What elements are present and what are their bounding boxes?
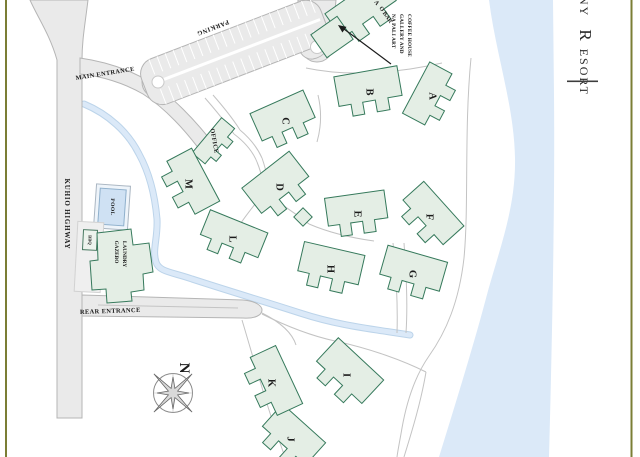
building-label-f: F: [424, 214, 435, 220]
building-label-e: E: [352, 210, 363, 217]
building-label-a: A: [427, 92, 438, 100]
bbq-label: BBQ: [88, 235, 93, 245]
building-label-j: J: [285, 436, 296, 441]
gallery-label-line1: NA PALI ART: [390, 14, 396, 49]
building-label-i: I: [341, 373, 352, 377]
compass-north-label: N: [176, 363, 192, 374]
building-label-h: H: [325, 265, 336, 273]
building-label-c: C: [280, 117, 291, 125]
compass-star: [154, 374, 192, 412]
building-label-d: D: [274, 183, 285, 191]
kuhio-highway-label: KUHIO HIGHWAY: [63, 178, 71, 249]
frame-left: [5, 0, 7, 457]
frame-right: [631, 0, 633, 457]
gallery-label-line2: GALLERY AND: [398, 14, 404, 54]
resort-map: POOL BBQ GAZEBO LAUNDRY OFFICE A O BAR N…: [0, 0, 640, 457]
title-rule: [567, 81, 598, 83]
building-label-g: G: [407, 270, 418, 278]
turnaround-island-west: [152, 76, 164, 88]
gazebo-label: GAZEBO: [113, 241, 119, 264]
gallery-label-line3: COFFEE HOUSE: [406, 14, 412, 57]
resort-map-page: POOL BBQ GAZEBO LAUNDRY OFFICE A O BAR N…: [0, 0, 640, 457]
pool-label: POOL: [109, 198, 115, 215]
building-label-k: K: [266, 379, 277, 388]
laundry-label: LAUNDRY: [121, 241, 127, 267]
building-label-l: L: [227, 235, 238, 242]
building-label-b: B: [364, 88, 375, 95]
building-label-m: M: [183, 179, 194, 189]
